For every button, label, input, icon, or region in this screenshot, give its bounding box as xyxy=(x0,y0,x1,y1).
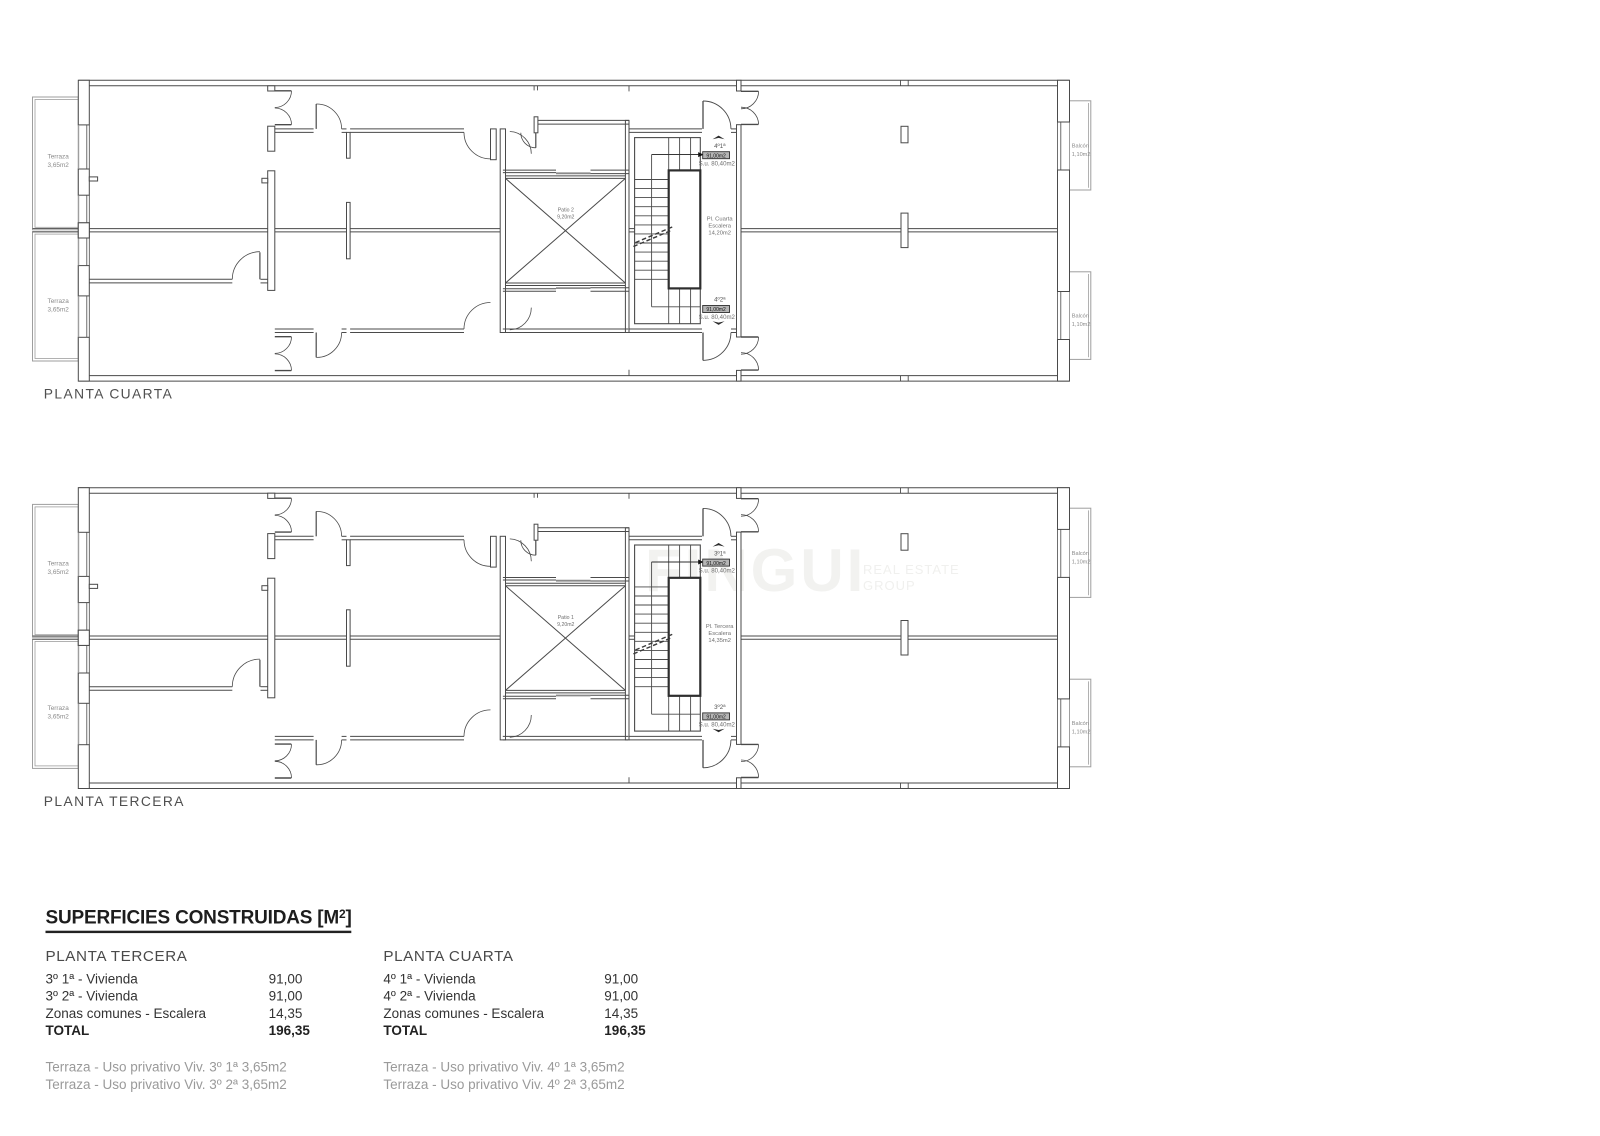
svg-text:3,65m2: 3,65m2 xyxy=(48,714,70,721)
svg-text:PLANTA TERCERA: PLANTA TERCERA xyxy=(44,794,185,809)
svg-text:Escalera: Escalera xyxy=(708,631,731,637)
svg-text:GROUP: GROUP xyxy=(863,578,916,593)
svg-text:PLANTA TERCERA: PLANTA TERCERA xyxy=(46,948,188,965)
svg-text:Patio 2: Patio 2 xyxy=(558,208,574,214)
svg-text:S.u. 80,40m2: S.u. 80,40m2 xyxy=(699,568,736,575)
svg-text:Balcón: Balcón xyxy=(1072,721,1089,727)
svg-text:1,10m2: 1,10m2 xyxy=(1072,559,1091,565)
svg-text:Zonas comunes - Escalera: Zonas comunes - Escalera xyxy=(383,1006,544,1021)
svg-text:TOTAL: TOTAL xyxy=(383,1023,427,1038)
svg-text:Escalera: Escalera xyxy=(708,224,731,230)
svg-text:REAL ESTATE: REAL ESTATE xyxy=(863,562,960,577)
svg-text:14,35: 14,35 xyxy=(604,1006,638,1021)
svg-text:91,00: 91,00 xyxy=(269,972,303,987)
svg-text:S.u. 80,40m2: S.u. 80,40m2 xyxy=(699,160,736,167)
svg-text:Terraza - Uso privativo Viv. 4: Terraza - Uso privativo Viv. 4º 1ª 3,65m… xyxy=(383,1060,624,1075)
svg-text:91,00m2: 91,00m2 xyxy=(706,715,726,721)
svg-text:TOTAL: TOTAL xyxy=(46,1023,90,1038)
svg-text:Terraza - Uso privativo Viv. 4: Terraza - Uso privativo Viv. 4º 2ª 3,65m… xyxy=(383,1077,624,1092)
svg-text:Terraza: Terraza xyxy=(48,705,70,712)
svg-text:Balcón: Balcón xyxy=(1072,144,1089,150)
svg-text:4º1ª: 4º1ª xyxy=(714,143,726,150)
svg-text:91,00m2: 91,00m2 xyxy=(706,307,726,313)
svg-text:PLANTA CUARTA: PLANTA CUARTA xyxy=(383,948,513,965)
svg-text:14,35: 14,35 xyxy=(269,1006,303,1021)
svg-text:Terraza - Uso privativo Viv. 3: Terraza - Uso privativo Viv. 3º 1ª 3,65m… xyxy=(46,1060,287,1075)
svg-text:3,65m2: 3,65m2 xyxy=(48,569,70,576)
svg-text:Patio 1: Patio 1 xyxy=(558,615,574,621)
svg-text:196,35: 196,35 xyxy=(604,1023,646,1038)
svg-text:3º2ª: 3º2ª xyxy=(714,704,726,711)
svg-text:9,20m2: 9,20m2 xyxy=(557,622,574,628)
svg-text:3º 2ª - Vivienda: 3º 2ª - Vivienda xyxy=(46,989,139,1004)
svg-text:1,10m2: 1,10m2 xyxy=(1072,729,1091,735)
svg-text:3,65m2: 3,65m2 xyxy=(48,162,70,169)
svg-text:9,20m2: 9,20m2 xyxy=(557,215,574,221)
svg-text:Zonas comunes - Escalera: Zonas comunes - Escalera xyxy=(46,1006,207,1021)
svg-text:3º 1ª - Vivienda: 3º 1ª - Vivienda xyxy=(46,972,139,987)
svg-text:1,10m2: 1,10m2 xyxy=(1072,322,1091,328)
svg-text:PLANTA CUARTA: PLANTA CUARTA xyxy=(44,386,173,401)
svg-text:3º1ª: 3º1ª xyxy=(714,550,726,557)
svg-text:Pl. Tercera: Pl. Tercera xyxy=(706,624,734,630)
svg-text:SUPERFICIES CONSTRUIDAS [M2]: SUPERFICIES CONSTRUIDAS [M2] xyxy=(46,907,352,929)
svg-text:3,65m2: 3,65m2 xyxy=(48,306,70,313)
svg-text:91,00: 91,00 xyxy=(604,989,638,1004)
svg-text:Terraza: Terraza xyxy=(48,561,70,568)
svg-text:91,00: 91,00 xyxy=(269,989,303,1004)
svg-text:14,20m2: 14,20m2 xyxy=(708,231,731,237)
svg-text:S.u. 80,40m2: S.u. 80,40m2 xyxy=(699,314,736,321)
svg-text:Balcón: Balcón xyxy=(1072,314,1089,320)
svg-text:Pl. Cuarta: Pl. Cuarta xyxy=(707,217,734,223)
svg-text:Terraza - Uso privativo Viv. 3: Terraza - Uso privativo Viv. 3º 2ª 3,65m… xyxy=(46,1077,287,1092)
svg-text:91,00m2: 91,00m2 xyxy=(706,561,726,567)
svg-text:14,35m2: 14,35m2 xyxy=(708,638,731,644)
svg-text:91,00m2: 91,00m2 xyxy=(706,153,726,159)
svg-text:Terraza: Terraza xyxy=(48,298,70,305)
svg-text:91,00: 91,00 xyxy=(604,972,638,987)
svg-text:4º2ª: 4º2ª xyxy=(714,297,726,304)
svg-text:4º 1ª - Vivienda: 4º 1ª - Vivienda xyxy=(383,972,476,987)
svg-text:4º 2ª - Vivienda: 4º 2ª - Vivienda xyxy=(383,989,476,1004)
svg-text:196,35: 196,35 xyxy=(269,1023,311,1038)
svg-text:1,10m2: 1,10m2 xyxy=(1072,152,1091,158)
svg-text:Terraza: Terraza xyxy=(48,153,70,160)
svg-text:Balcón: Balcón xyxy=(1072,551,1089,557)
svg-text:S.u. 80,40m2: S.u. 80,40m2 xyxy=(699,722,736,729)
